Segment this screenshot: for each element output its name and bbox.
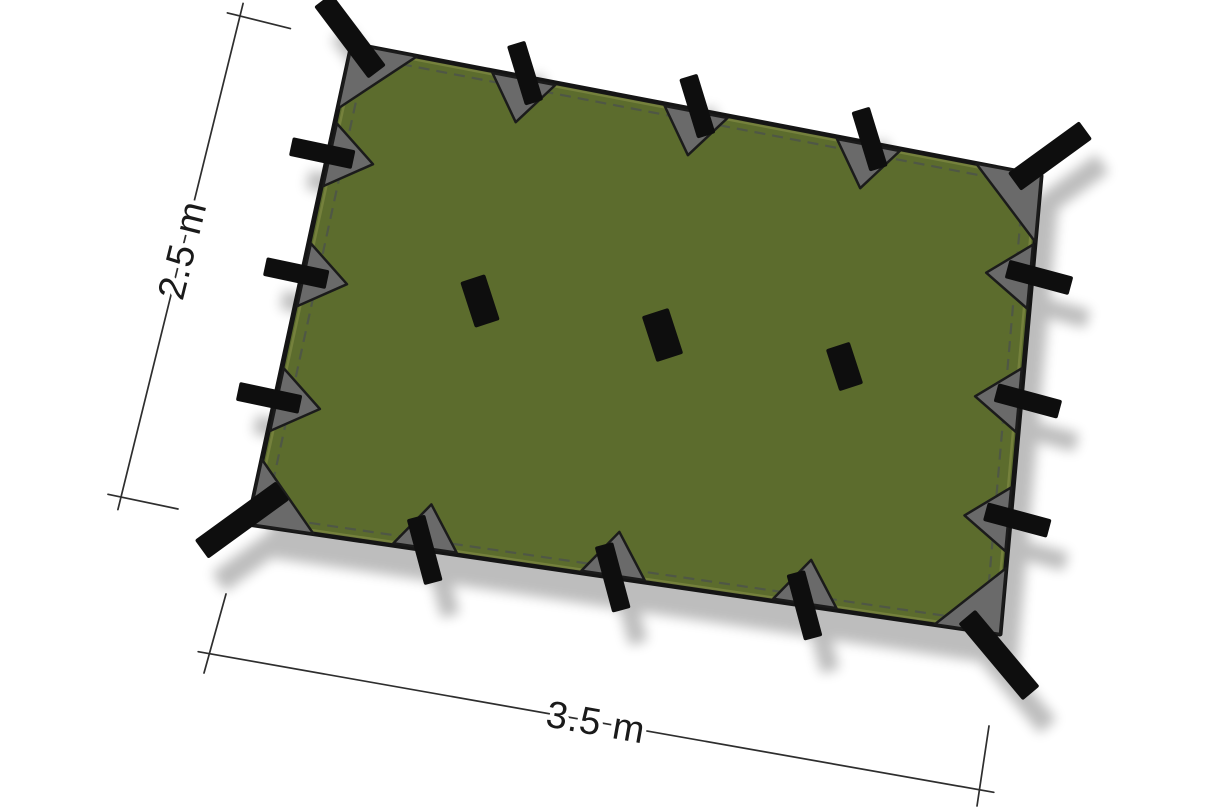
dimension-label-height: 2.5 m <box>150 197 215 304</box>
extension-line-width-left <box>204 594 226 673</box>
tarp-dimension-diagram: 2.5 m 3.5 m <box>0 0 1214 809</box>
extension-line-width-right <box>977 726 989 806</box>
diagram-canvas: 2.5 m 3.5 m <box>0 0 1214 809</box>
dimension-label-width: 3.5 m <box>543 694 649 753</box>
